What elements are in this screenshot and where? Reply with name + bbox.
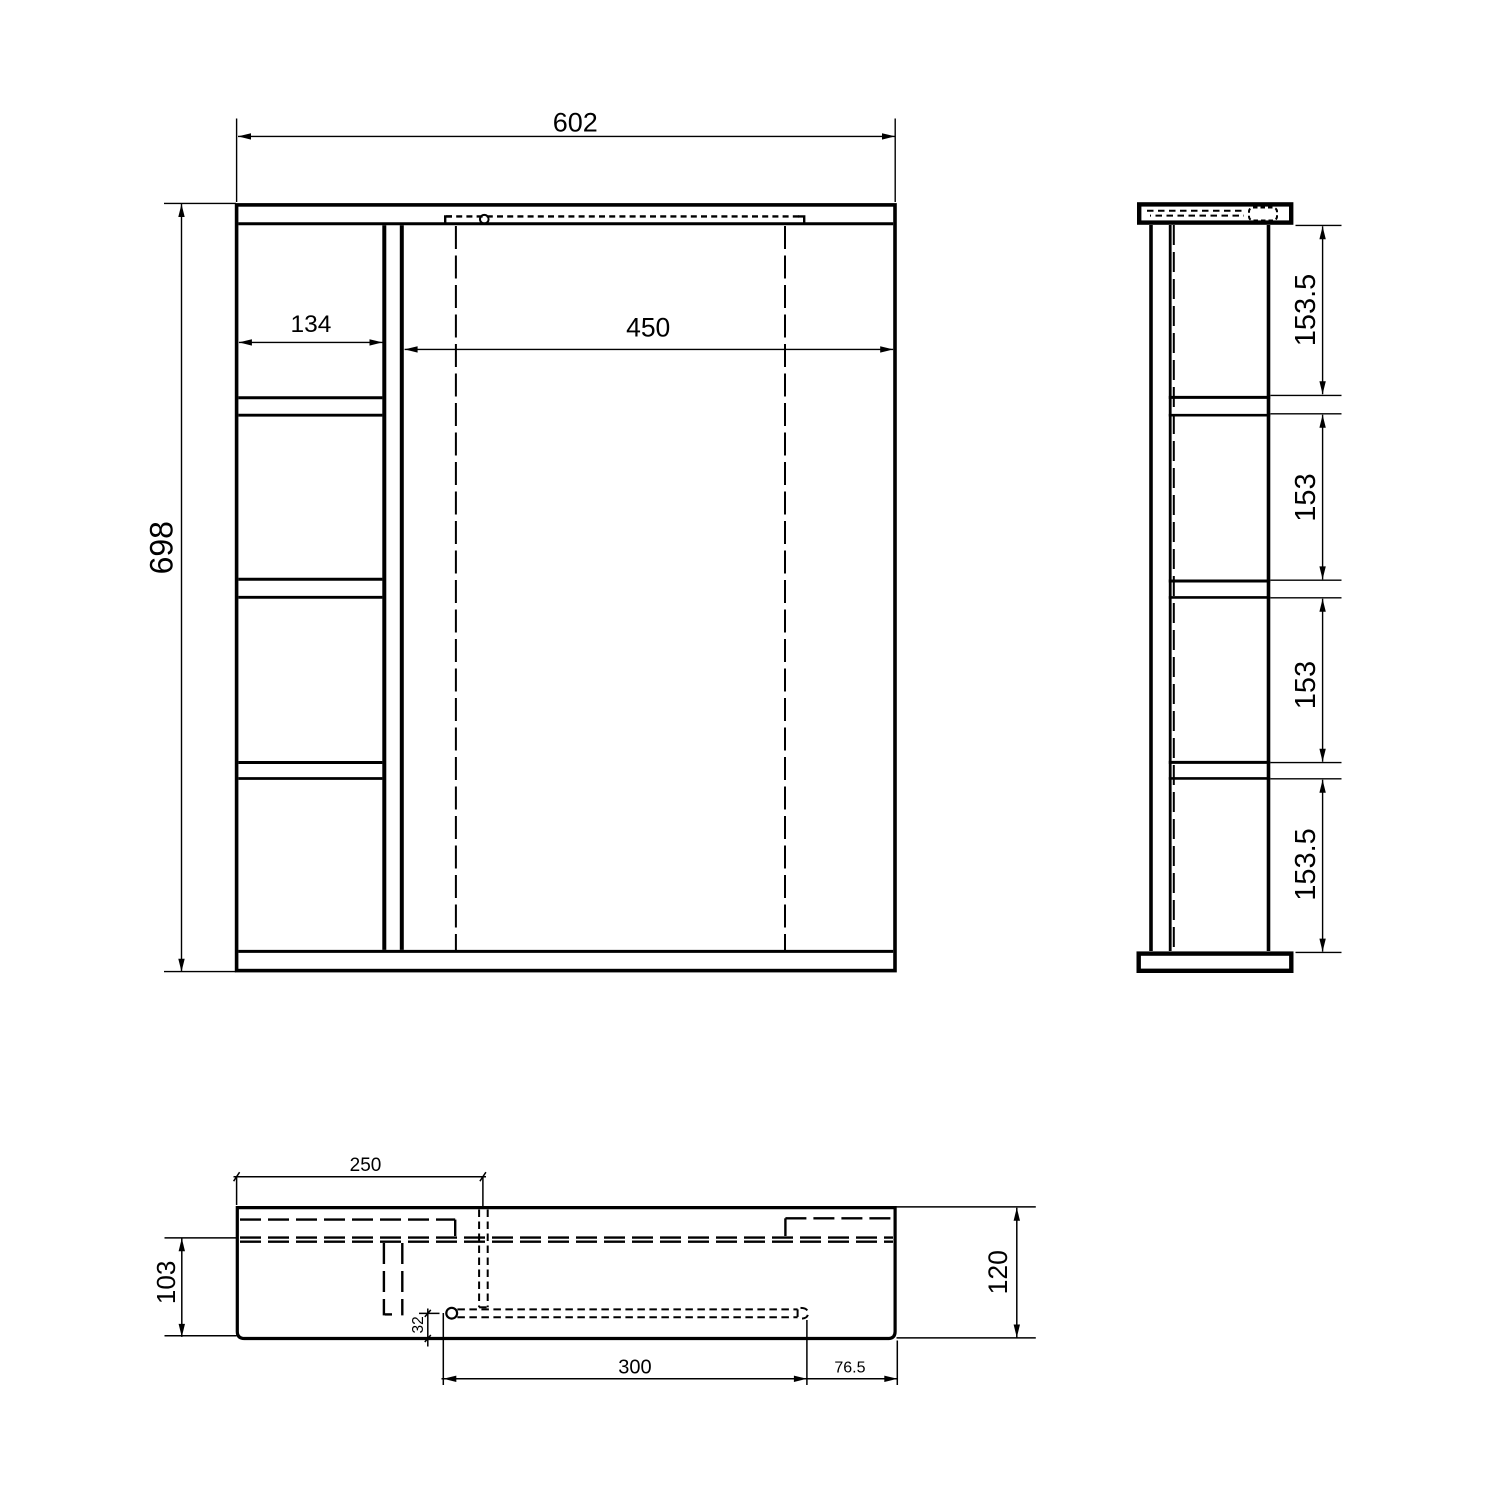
svg-text:153.5: 153.5 <box>1290 828 1322 901</box>
svg-text:602: 602 <box>553 107 598 137</box>
svg-text:698: 698 <box>144 521 180 574</box>
svg-text:153: 153 <box>1290 661 1322 709</box>
svg-text:153: 153 <box>1290 473 1322 521</box>
svg-text:120: 120 <box>983 1250 1013 1294</box>
svg-text:153.5: 153.5 <box>1290 274 1322 347</box>
svg-text:134: 134 <box>291 311 332 338</box>
svg-text:103: 103 <box>151 1261 181 1304</box>
svg-text:76.5: 76.5 <box>834 1359 865 1376</box>
svg-text:32: 32 <box>410 1316 427 1333</box>
svg-text:450: 450 <box>626 312 670 342</box>
svg-text:300: 300 <box>618 1357 651 1379</box>
svg-text:250: 250 <box>350 1155 382 1176</box>
